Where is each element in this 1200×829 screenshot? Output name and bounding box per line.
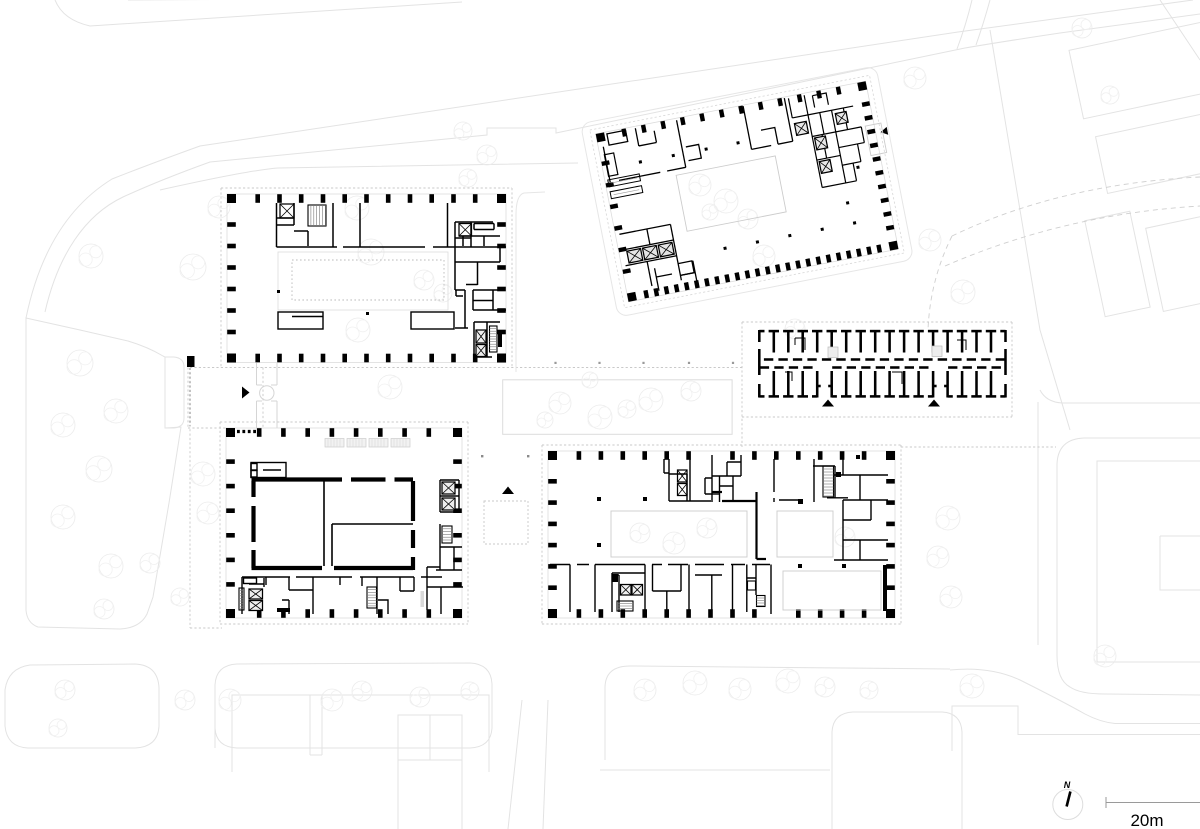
svg-text:N: N xyxy=(1064,780,1071,790)
svg-text:20m: 20m xyxy=(1130,811,1163,829)
